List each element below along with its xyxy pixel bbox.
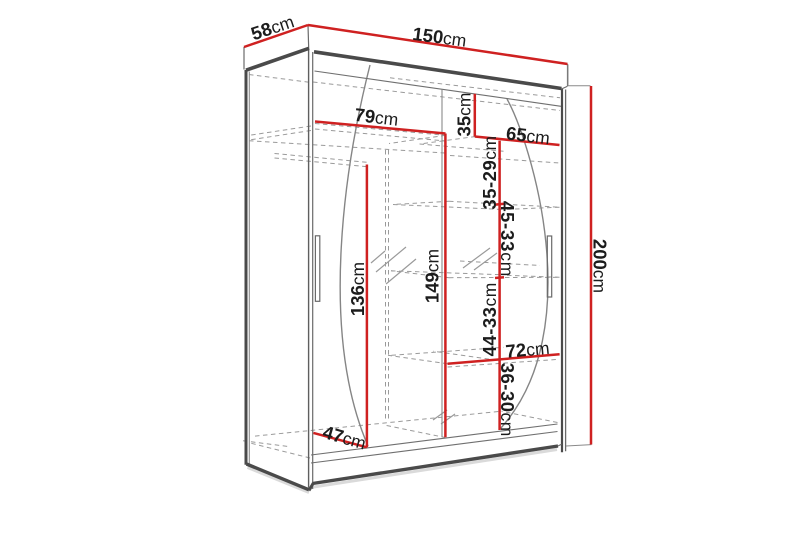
svg-text:44-33cm: 44-33cm xyxy=(479,282,500,356)
svg-text:149cm: 149cm xyxy=(421,249,442,303)
svg-text:36-30cm: 36-30cm xyxy=(497,363,518,437)
svg-text:72cm: 72cm xyxy=(505,337,551,362)
svg-text:136cm: 136cm xyxy=(347,262,368,316)
svg-text:45-33cm: 45-33cm xyxy=(497,201,518,277)
svg-text:35cm: 35cm xyxy=(454,93,475,137)
svg-text:200cm: 200cm xyxy=(590,239,611,293)
svg-text:35-29cm: 35-29cm xyxy=(479,135,500,209)
